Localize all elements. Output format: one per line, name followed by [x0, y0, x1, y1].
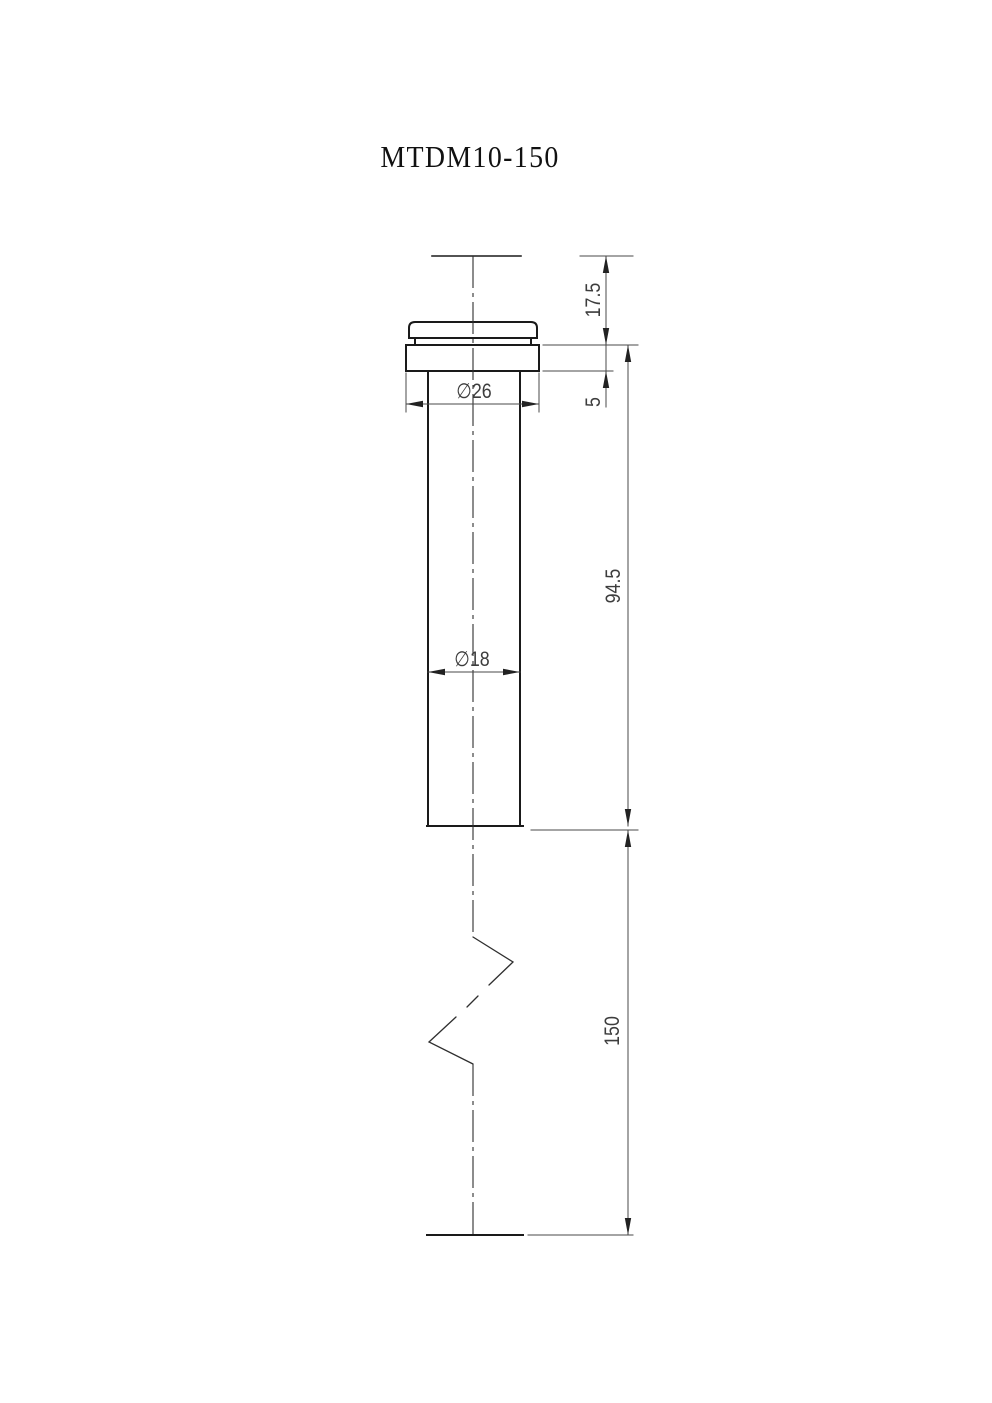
break-middle-dash — [467, 996, 478, 1007]
drawing-title: MTDM10-150 — [380, 141, 559, 175]
arrow-d26-right — [522, 401, 539, 407]
arrow-150-top-up — [625, 830, 631, 847]
dim-text-cap-height: 17.5 — [582, 282, 606, 317]
dim-text-body-length: 94.5 — [602, 568, 626, 603]
arrow-17-5-bottom-down — [603, 328, 609, 345]
dim-text-flange-diameter: ∅26 — [456, 380, 491, 404]
dim-text-flange-thickness: 5 — [582, 397, 606, 407]
arrow-5-bottom-up — [603, 371, 609, 388]
drawing-page: ∅26 ∅18 17.5 5 94.5 150 MTDM10-150 — [0, 0, 992, 1403]
arrow-d18-right — [503, 669, 520, 675]
dim-text-body-diameter: ∅18 — [454, 648, 489, 672]
arrow-94-5-top-up — [625, 345, 631, 362]
arrow-94-5-bottom-down — [625, 809, 631, 826]
arrow-d18-left — [428, 669, 445, 675]
dim-text-shank-length: 150 — [601, 1016, 625, 1046]
arrow-17-5-top-up — [603, 256, 609, 273]
break-symbol — [429, 937, 513, 1064]
technical-drawing: ∅26 ∅18 17.5 5 94.5 150 MTDM10-150 — [0, 0, 992, 1403]
break-lower-zig — [429, 1017, 473, 1064]
dimension-texts: ∅26 ∅18 17.5 5 94.5 150 — [454, 282, 625, 1045]
arrow-150-bottom-down — [625, 1218, 631, 1235]
break-upper-zig — [473, 937, 513, 985]
arrow-d26-left — [406, 401, 423, 407]
